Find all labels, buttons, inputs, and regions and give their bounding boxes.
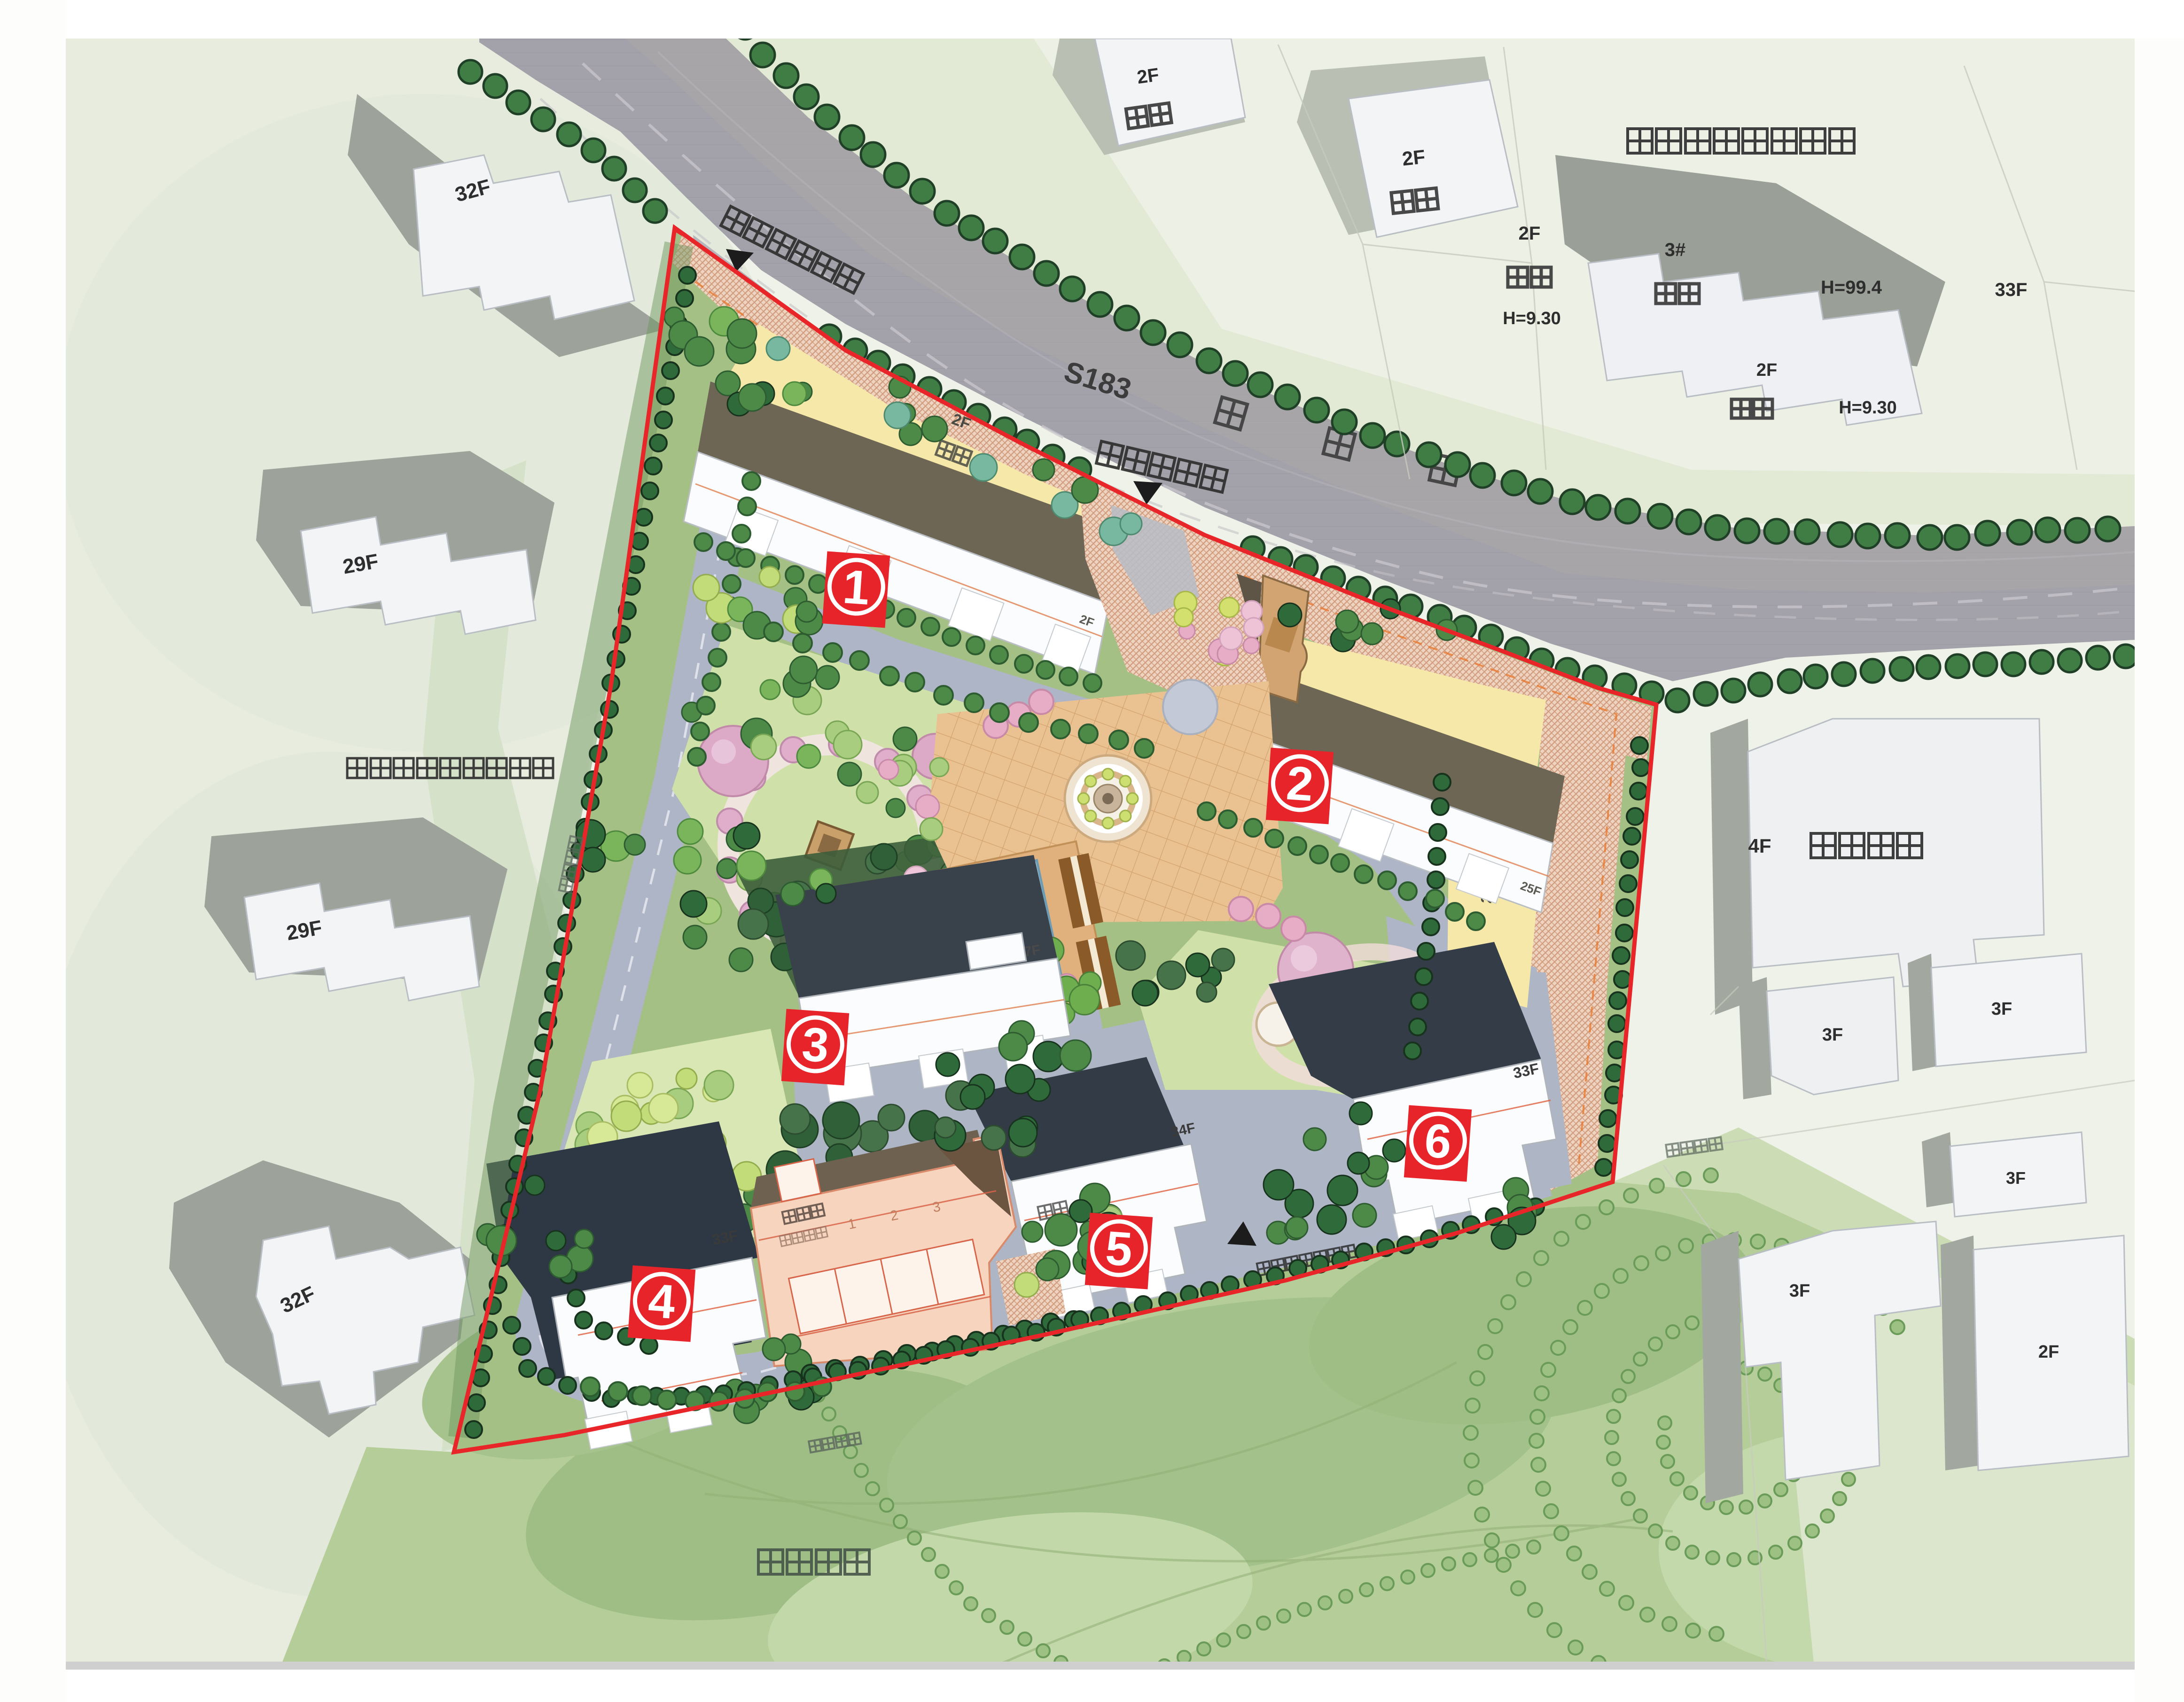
svg-text:1: 1 (841, 560, 872, 615)
svg-text:4: 4 (647, 1274, 677, 1329)
svg-text:2F: 2F (1519, 223, 1541, 244)
svg-text:5: 5 (1104, 1221, 1134, 1276)
svg-text:H=9.30: H=9.30 (1503, 309, 1561, 328)
svg-text:33F: 33F (1995, 280, 2028, 300)
svg-text:2F: 2F (1136, 64, 1160, 88)
svg-text:3: 3 (800, 1017, 831, 1072)
svg-text:2F: 2F (1401, 146, 1427, 170)
svg-text:3F: 3F (1789, 1281, 1810, 1301)
svg-text:3#: 3# (1665, 240, 1686, 260)
svg-text:4F: 4F (1748, 835, 1771, 857)
svg-text:H=9.30: H=9.30 (1839, 398, 1897, 418)
svg-text:3F: 3F (1822, 1025, 1843, 1045)
svg-text:3F: 3F (1991, 999, 2012, 1019)
svg-text:6: 6 (1423, 1113, 1453, 1169)
svg-text:2F: 2F (1756, 360, 1777, 380)
svg-text:3F: 3F (2006, 1168, 2026, 1188)
svg-text:2F: 2F (2038, 1342, 2059, 1362)
svg-text:2: 2 (1285, 756, 1315, 811)
svg-text:H=99.4: H=99.4 (1821, 277, 1882, 298)
